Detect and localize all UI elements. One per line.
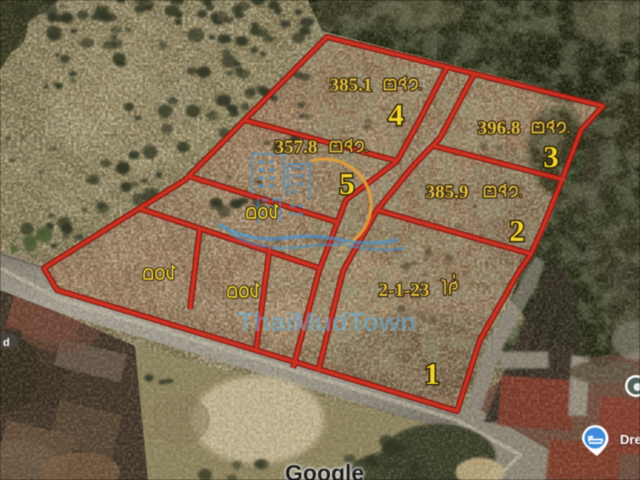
svg-text:4: 4	[388, 97, 404, 132]
svg-text:385.9: 385.9	[426, 182, 469, 203]
svg-text:5: 5	[339, 166, 355, 201]
svg-text:396.8: 396.8	[478, 118, 521, 139]
svg-text:ThaiMudTown: ThaiMudTown	[237, 307, 416, 337]
svg-text:2: 2	[509, 213, 525, 248]
svg-text:d: d	[3, 337, 10, 349]
svg-text:357.8: 357.8	[275, 137, 318, 158]
svg-text:Google: Google	[285, 460, 364, 480]
svg-text:1: 1	[424, 356, 440, 391]
svg-text:385.1: 385.1	[330, 75, 373, 96]
svg-text:Dre: Dre	[620, 432, 640, 447]
svg-text:3: 3	[543, 139, 559, 174]
svg-text:2-1-23: 2-1-23	[379, 280, 430, 301]
